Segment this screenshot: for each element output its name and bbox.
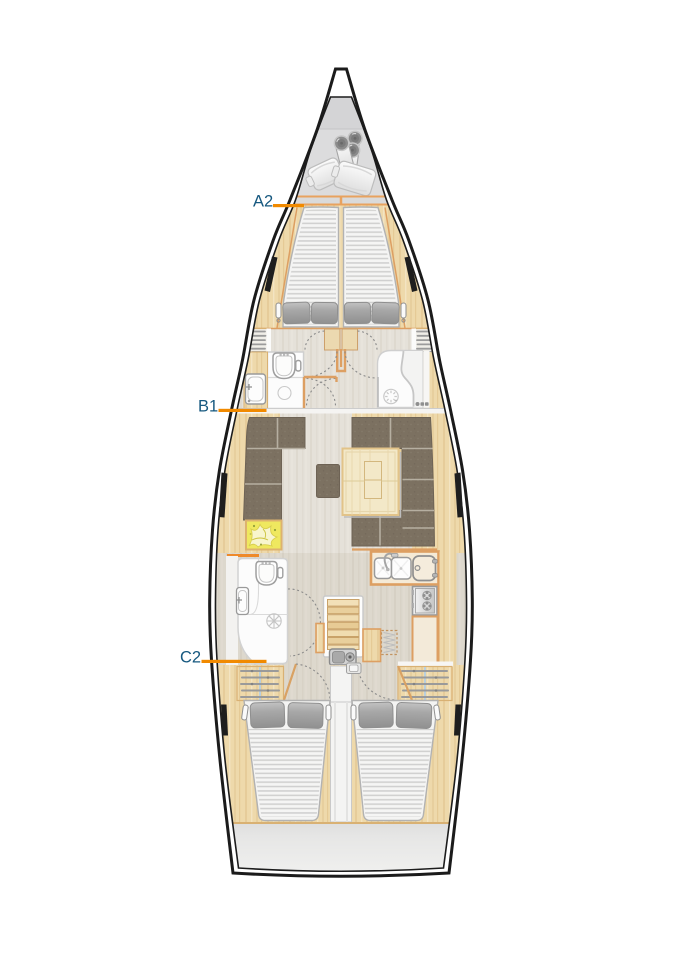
svg-text:A2: A2: [253, 193, 273, 211]
svg-text:B1: B1: [198, 398, 218, 416]
svg-text:C2: C2: [180, 649, 201, 667]
